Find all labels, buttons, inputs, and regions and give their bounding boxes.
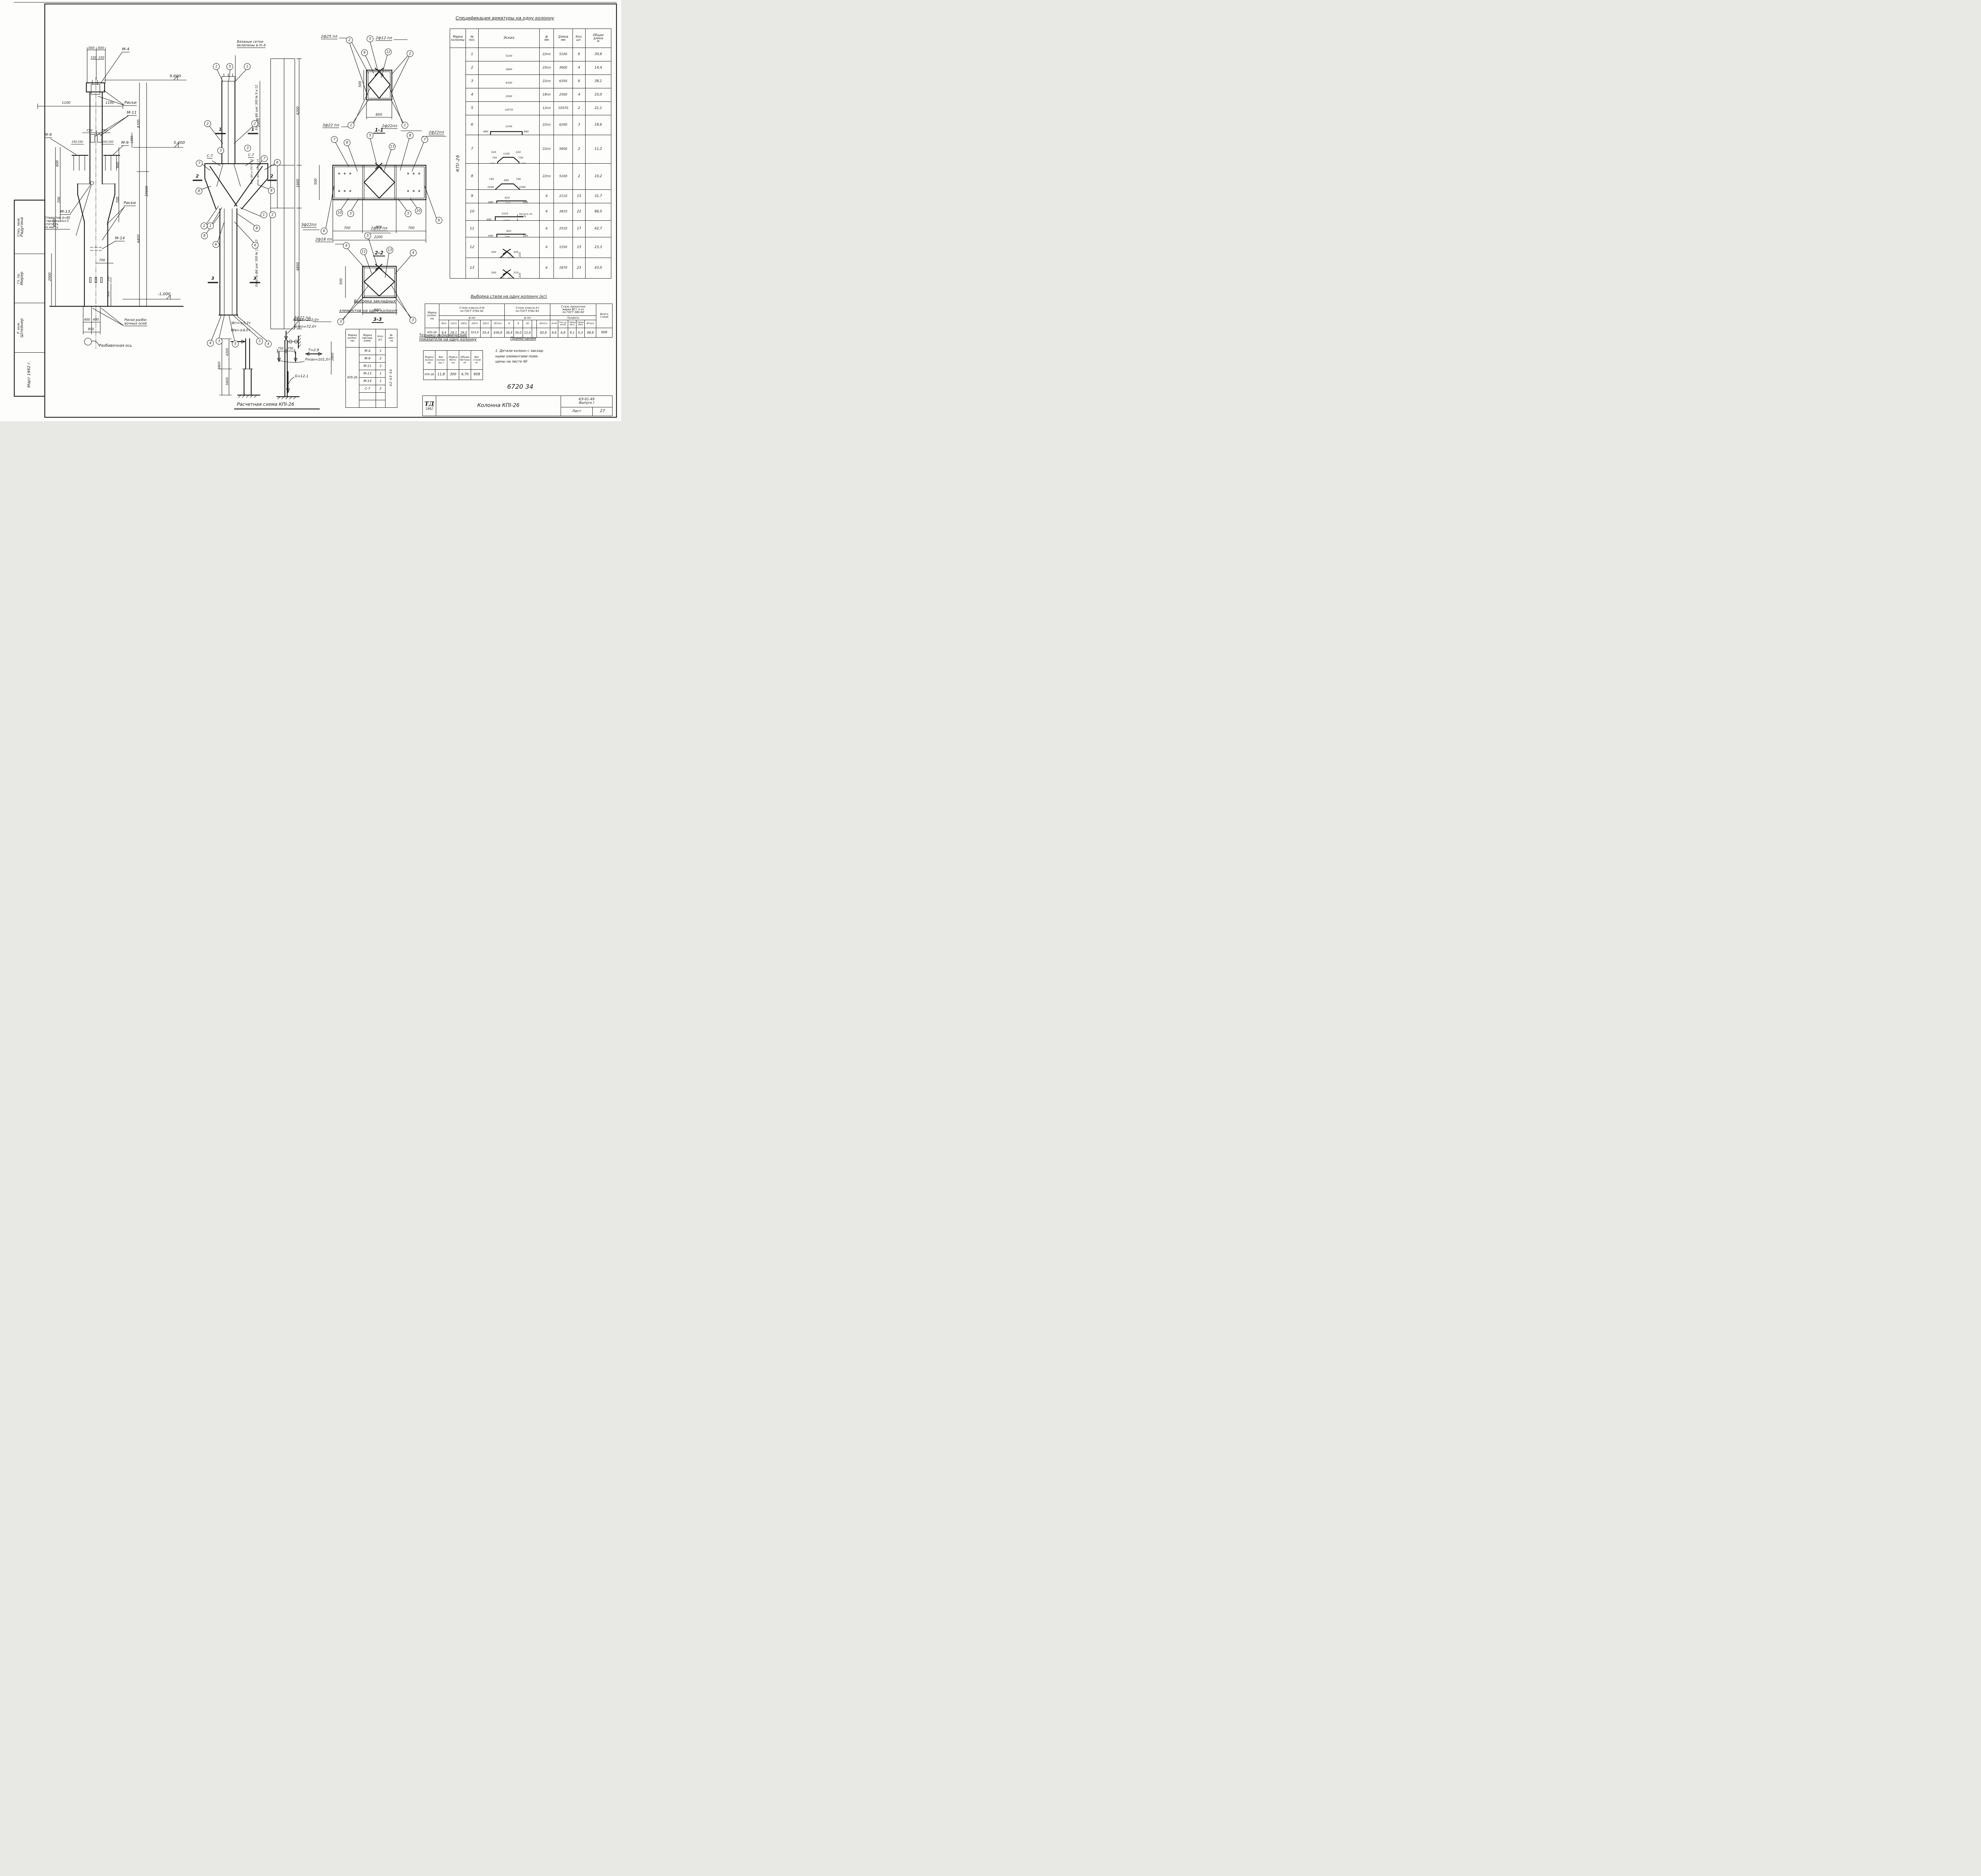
cell-total: 10,2 [586,164,611,190]
cell-total: 21,1 [586,102,611,115]
section-mark-3: 3 [211,276,214,281]
col-header: Итого [491,320,505,328]
dim-label: 1100 [62,101,71,105]
cell-total: 86,0 [586,203,611,221]
rebar-callout: 8 [407,132,414,139]
mark-label-m9: М-9 [121,141,129,146]
rebar-callout: 8 [196,188,202,195]
stamp-row-engineer: Р. инж. Штейнер [14,303,45,352]
column-mark: КПІ-26 [456,155,460,172]
elevation-label: 9.600 [170,75,181,79]
rebar-callout: 8 [201,233,208,239]
cell-len: 10570 [554,102,573,115]
col-header: Гайки М16 [576,320,585,328]
cell-pos: 3 [466,75,479,88]
cell-qty: 2 [573,102,586,115]
load-label: Т=2,9 [308,349,319,352]
cell [359,393,376,400]
drawing-title: Колонна КПІ-26 [436,396,561,416]
sketch-dim: 520 [491,151,496,154]
rebar-callout: 1 [348,122,355,129]
cell-len: 3910 [554,203,573,221]
elevation-label: 5.400 [174,141,185,145]
rebar-callout: 2 [204,120,211,127]
load-label: G=12,1 [295,375,309,378]
cell-len: 2110 [554,190,573,203]
doc-issue: Выпуск I [561,401,612,405]
sketch-dim: 740 [516,178,521,181]
sketch-dim: 220 [519,273,521,277]
dim-label: 700 [344,227,350,230]
elevation-label: -1,000 [158,292,170,297]
rebar-callout: 5 [367,36,374,42]
rebar-callout: 8 [344,139,351,146]
cell: 1 [376,370,386,378]
rebar-callout: 1 [261,212,267,218]
load-label: Nmax=202,0т [293,319,319,322]
dim-label: 150 [98,56,104,59]
dim-label: 6400 [137,235,141,243]
cell-len: 5600 [554,135,573,164]
rebar-callout: 3 [244,145,251,152]
dim-label: 800 [88,328,94,331]
rebar-callout: 7 [261,155,268,162]
sketch-dim: 610 [505,197,510,199]
cell-pos: 13 [466,258,479,279]
rebar-callout: 4 [410,250,417,256]
cell: М-11 [359,363,376,370]
sketch-dim: 420 [491,251,496,254]
rebar-callout: 4 [343,243,350,249]
rebar-callout: 5 [367,132,374,139]
sketch-dim: 860 [483,130,488,133]
cell-total: 30,6 [586,48,611,61]
rebar-callout: 7 [331,136,338,143]
rebar-callout: 12 [385,49,392,55]
cell: 82,8 [537,328,550,338]
cell: М-13 [359,370,376,378]
table-row: 6 2140 860 860 1170 1170 830 830 22пл 62… [450,115,611,135]
sketch-dim: 860 [524,130,529,133]
cell: 2 [376,385,386,393]
sketch-dim: 440 [488,201,493,203]
cell-total: 43,0 [586,258,611,279]
col-header: Объем бетона м³ [459,351,471,370]
sketch-dim: 1040 [519,186,526,189]
cell-dia: 6 [540,221,554,237]
cell-total: 14,4 [586,61,611,75]
col-header: Вес колон- ны,т [435,351,447,370]
mesh-note: Вязаные сетки включены в m-4 [237,40,265,48]
rebar-callout: 8 [268,187,275,194]
dim-label: 250 [72,141,77,143]
col-header: Кол. шт. [376,329,386,348]
cell-qty: 15 [573,237,586,258]
sketch-dim: 740 [505,236,510,237]
dim-label: 700 [116,197,120,203]
col-header: Марка колон- ны [346,329,359,348]
sketch-dim: 810 [506,230,511,233]
col-header: № поз. [466,29,479,48]
sketch-dim: 6350 [479,82,539,84]
table-row: 11 810 440 740 520 6 2510 17 42,7 [450,221,611,237]
col-header: Марка бето- на [447,351,459,370]
doc-number: 6720 34 [507,384,533,390]
rebar-callout: 11 [361,248,367,255]
rebar-note: 3ф22пл [301,223,317,227]
rebar-callout: 1 [207,223,214,229]
cell: 608 [471,370,483,380]
table-row: 12 420 430 350 350 270 220 220 6 1550 15… [450,237,611,258]
axis-label: Разбивочная ось [99,344,132,348]
dim-label: 500 [359,81,363,87]
rebar-callout: 10 [336,210,343,216]
col-header: Общая длина м [586,29,611,48]
table-row: КПІ-26 М-4 1 42·43·44 [346,348,397,355]
axes-note: Риски разби- вочных осей [124,319,147,326]
col-header: 8 [514,320,523,328]
dim-label: 4200 [296,107,300,115]
mark-label-m13: М-13 [60,210,70,215]
load-label: Nmin=72,0т [294,325,317,329]
section-mark-2: 2 [270,174,273,179]
cell-qty: 6 [573,75,586,88]
col-header: 8пл [439,320,449,328]
notes-body: 1. Детали колонн с заклад- ными элемента… [495,349,544,365]
dim-label: 4800 [296,262,300,271]
cell-dia: 22пл [540,48,554,61]
cell: 1 [376,378,386,385]
dim-label: 4200 [226,348,229,356]
table-row: 7 520 1100 520 730 730 340 340 1180 1180… [450,135,611,164]
cell: 88,8 [585,328,596,338]
cell-qty: 6 [573,48,586,61]
mark-label-m9: М-9 [44,133,52,138]
sketch-dim: 430 [513,251,518,254]
col-header: Эскиз [479,29,540,48]
sketch-dim: 3600 [479,68,539,71]
cell-dia: 25пл [540,61,554,75]
cell: 608 [596,328,613,338]
sketch-dim: 1040 [487,186,494,189]
cell-qty: 22 [573,203,586,221]
cell: 4,70 [459,370,471,380]
dim-label: 5600 [226,377,229,385]
rebar-note: 2ф22пл [429,131,444,135]
sketch-dim: 500 [491,271,496,274]
sketch-dim: 5100 [479,55,539,57]
col-header: Итого [585,320,596,328]
col-header: Газ.тр. d=50 [558,320,568,328]
cell-len: 6350 [554,75,573,88]
stamp-row-checker: Спец. пров. Радугина [14,200,45,254]
dim-label: 300 [97,47,104,50]
sketch-dim: 730 [518,157,523,159]
dim-label: 750 [278,347,283,350]
embed-elements-table: Марка колон- ны Марка заклад. элем. Кол.… [345,329,397,408]
rebar-callout: 5 [227,63,233,70]
rebar-callout: 5 [365,233,371,239]
dim-label: 250 [78,141,83,143]
rebar-callout: 6 [213,241,219,248]
cell: М-9 [359,355,376,363]
dim-label: 1350 [131,136,134,143]
sheet-number: 27 [593,407,613,416]
sketch-dim: 1100 [503,153,510,155]
sketch-dim: 220 [519,252,521,257]
rebar-note: 2ф18 пл [315,238,332,242]
rebar-callout: 4 [265,341,272,348]
cell-dia: 12пл [540,102,554,115]
cell-qty: 17 [573,221,586,237]
cell-dia: 22пл [540,75,554,88]
dim-label: 900 [116,162,120,168]
dim-label: 9800 [218,361,221,369]
cell-len: 1870 [554,258,573,279]
mark-label-m11: М-11 [127,111,137,116]
cell-dia: 6 [540,190,554,203]
dim-label: 2800 [331,353,334,361]
table-row: 10 1510 440 1960 Загнуть по месту 8 3910… [450,203,611,221]
col-header: Марка заклад. элем. [359,329,376,348]
strip-text: Хом. ф6 ш.300 № 13 [257,156,260,187]
dim-label: 2200 [374,236,383,239]
load-label: Wв=±4,0т [231,329,250,332]
cell-len: 2500 [554,88,573,102]
rebar-note: 2ф25 пл [321,35,338,39]
section-mark-1: 1 [251,127,254,132]
cell: 436,8 [491,328,505,338]
col-header: Всего стали [596,304,613,328]
cell [376,400,386,408]
section-title: 3-3 [372,317,384,323]
rebar-callout: 6 [274,159,281,166]
dim-label: 700 [408,227,414,230]
cell-dia: 8 [540,203,554,221]
cell: 36,4 [505,328,514,338]
sketch-dim: 430 [499,277,504,279]
rebar-callout: 3 [347,210,354,217]
sketch-dim: 2140 [479,125,539,128]
dim-label: 700 [99,259,105,262]
cell-pos: 11 [466,221,479,237]
scheme-title: Расчетная схема КПІ-26 [237,402,294,407]
dim-label: 400 [93,318,99,321]
cell-pos: 4 [466,88,479,102]
rebar-callout: 3 [216,338,223,345]
rebar-callout: 3 [338,319,344,325]
sketch-dim: 10570 [479,109,539,111]
cell-dia: 22пл [540,115,554,135]
sketch-dim: 1510 [502,212,508,215]
cell [376,393,386,400]
table-row: КПІ-26 1 5100 22пл 5100 6 30,6 [450,48,611,61]
group-header: Сталь класса А-I по ГОСТ 5781-61 [505,304,550,316]
cell: С-7 [359,385,376,393]
strip-text: Хомуты ф6 шаг 300 № 11 и 13 [255,243,258,287]
riski-label: Риски [124,101,137,106]
dim-label: 4200 [137,120,141,128]
dim-label: 1100 [105,101,114,105]
table-row: 4 2500 18пл 2500 4 10,0 [450,88,611,102]
cell: 0,3 [576,328,585,338]
dim-label: 2000 [48,273,52,281]
cell-qty: 2 [573,164,586,190]
sketch-dim: 2500 [479,95,539,98]
notes-title: Примечания [510,337,536,341]
sub-header: ф мм [439,316,505,320]
cell-total: 11,2 [586,135,611,164]
rebar-callout: 3 [218,147,224,154]
col-header: Итого [537,320,550,328]
steel-summary-table: Марка колон- ны Сталь класса А-III по ГО… [425,304,613,338]
dim-label: 190 [107,276,110,281]
col-header: 22пл [469,320,481,328]
org-logo: ТД [423,401,436,407]
col-header: Марка колонны [450,29,466,48]
rebar-callout: 2 [407,50,414,57]
dim-label: 500 [340,278,344,285]
dim-label: 750 [288,347,293,350]
tech-table-title: Технико-экономические показатели на одну… [419,334,477,342]
cell-qty: 23 [573,258,586,279]
sketch-note: Загнуть по месту [519,213,538,218]
rebar-note: 2ф12 пл [376,36,392,41]
load-label: Wт=±3,3т [231,322,251,325]
rebar-callout: 2 [346,37,353,44]
col-header: 25пл [481,320,491,328]
cell-len: 1550 [554,237,573,258]
cell: 34,0 [514,328,523,338]
dim-label: 250 [102,141,107,143]
cell-dia: 6 [540,237,554,258]
cell-total: 31,7 [586,190,611,203]
cell-pos: 10 [466,203,479,221]
cell: 12,4 [523,328,532,338]
cell-qty: 3 [573,115,586,135]
sub-header: Профиль [550,316,596,320]
col-header: 12пл [449,320,459,328]
riski-label: Риски [124,201,136,206]
cell-pos: 2 [466,61,479,75]
col-header: 6 [505,320,514,328]
dim-label: 750 [101,129,107,132]
stamp-name: Радугина [20,201,25,254]
table-row: 3 6350 22пл 6350 6 38,1 [450,75,611,88]
cell-len: 3600 [554,61,573,75]
rebar-callout: 1 [213,63,220,70]
rebar-callout: 6 [436,217,443,224]
stamp-date: Март 1962 г. [14,352,45,396]
cell-qty: 15 [573,190,586,203]
cell: М-4 [359,348,376,355]
cell: 2 [376,355,386,363]
hole-note: Отверстие d=80 стержень поз.5 отогнуть п… [44,216,70,229]
cell: М-14 [359,378,376,385]
cell-pos: 6 [466,115,479,135]
rebar-note: 3ф22 пл [323,124,339,128]
table-row: КПІ-26 11,8 300 4,70 608 [424,370,483,380]
cell-pos: 7 [466,135,479,164]
cell-len: 6200 [554,115,573,135]
sketch-dim: 740 [489,178,494,181]
org-logo-cell: ТД 1962 [423,396,436,416]
col-header [532,320,537,328]
sketch-dim: 660 [504,179,509,182]
cell-qty: 4 [573,61,586,75]
cell-pos: 9 [466,190,479,203]
cell-pos: 12 [466,237,479,258]
rebar-callout: 7 [422,136,428,143]
cell-dia: 6 [540,258,554,279]
cell-qty: 4 [573,88,586,102]
rebar-callout: 6 [321,228,328,235]
section-mark-2: 2 [196,174,199,179]
col-header: Кол. шт. [573,29,586,48]
cell-dia: 22пл [540,135,554,164]
dim-label: 600 [376,113,382,117]
column-mark: КПІ-26 [346,348,359,408]
col-header: 20 [523,320,532,328]
rebar-callout: 8 [254,225,260,232]
spec-table-title: Спецификация арматуры на одну колонну [456,16,554,21]
cell: 8,6 [550,328,558,338]
cell: КПІ-26 [424,370,435,380]
design-scheme-lines [219,321,331,409]
dim-label: 600 [56,160,60,166]
col-header: Марка колон- ны [424,351,435,370]
mark-label-c7: С-7 [207,155,213,159]
sketch-dim: 520 [523,235,528,237]
cell: 1 [376,348,386,355]
cell-pos: 8 [466,164,479,190]
dim-label: 850 [107,291,110,296]
embed-table-title: Выборка закладных [354,300,396,304]
dim-label: 500 [315,178,318,185]
table-row: 5 10570 12пл 10570 2 21,1 [450,102,611,115]
col-header: 18пл [459,320,469,328]
rebar-callout: 2 [252,120,258,127]
steel-table-title: Выборка стали на одну колонну (кг) [471,295,547,299]
rebar-callout: 4 [207,340,214,347]
rebar-callout: 3 [256,338,263,345]
rebar-callout: 7 [196,160,203,167]
rebar-note: 2ф22пл [382,124,397,129]
stamp-name: Мирер [20,254,25,303]
dim-label: 250 [108,141,113,143]
cell-total: 42,7 [586,221,611,237]
dim-label: 700 [58,197,61,203]
cell-dia: 18пл [540,88,554,102]
sketch-dim: 440 [487,218,491,221]
cell [359,400,376,408]
cell-pos: 1 [466,48,479,61]
rebar-callout: 10 [415,208,422,214]
cell-len: 2510 [554,221,573,237]
cell: 6,8 [558,328,568,338]
table-row: 13 500 510 430 430 370 220 220 6 1870 23… [450,258,611,279]
col-header: Марка колон- ны [425,304,439,328]
sketch-dim: 520 [516,151,521,154]
cell: 9,1 [568,328,576,338]
cell-len: 5100 [554,164,573,190]
mark-label-m14: М-14 [115,237,125,241]
dim-label: 10600 [145,186,149,197]
sketch-dim: 510 [513,271,518,274]
note-leader-lines [303,38,446,322]
mid-elevation-lines [193,55,302,341]
col-header: Длина мм [554,29,573,48]
